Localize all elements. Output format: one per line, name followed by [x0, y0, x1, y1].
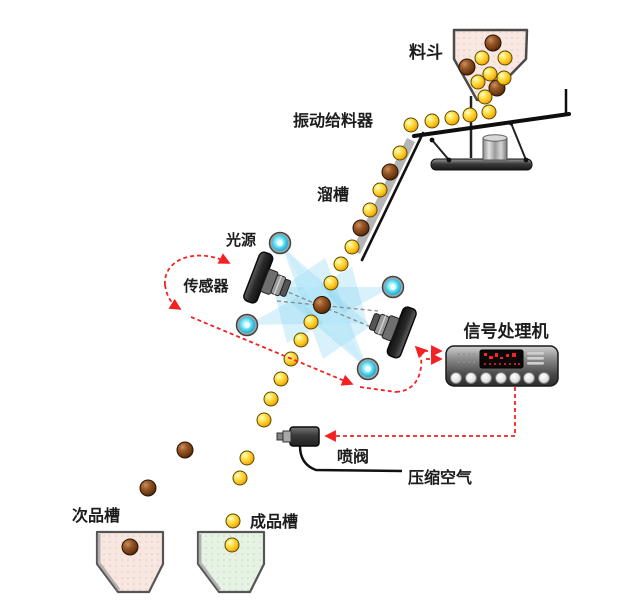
color-sorter-diagram: 料斗 振动给料器 — [0, 0, 640, 605]
reject-ball — [485, 35, 501, 51]
lamp-bottom — [358, 359, 379, 380]
reject-ball — [140, 480, 156, 496]
valve-nozzle — [277, 433, 283, 440]
accept-ball — [373, 183, 387, 197]
accept-ball — [497, 71, 511, 85]
sensor-label: 传感器 — [182, 277, 229, 295]
reject-ball — [122, 539, 138, 555]
reject-ball — [382, 164, 398, 180]
processor-button — [481, 373, 492, 384]
accept-ball — [226, 514, 240, 528]
processor-vents — [527, 352, 544, 365]
accept-ball — [471, 75, 485, 89]
processor-button — [496, 373, 507, 384]
pivot-dot — [524, 158, 529, 163]
accept-ball — [404, 118, 418, 132]
product-bin-label: 成品槽 — [250, 512, 298, 531]
feeder-base — [431, 159, 532, 170]
accept-ball — [498, 51, 512, 65]
valve-body — [290, 427, 319, 446]
reject-ball — [459, 59, 475, 75]
diagram-canvas: 料斗 振动给料器 — [0, 0, 640, 605]
accept-ball — [294, 333, 308, 347]
accept-ball — [240, 451, 254, 465]
accept-ball — [482, 105, 496, 119]
processor-button — [524, 373, 535, 384]
processor-button — [510, 373, 521, 384]
accept-ball — [478, 90, 492, 104]
processor-button — [451, 373, 462, 384]
feeder-leg-left — [432, 140, 449, 160]
accept-ball — [483, 67, 497, 81]
reject-bin — [97, 532, 163, 592]
accept-ball — [345, 240, 359, 254]
accept-ball — [334, 257, 348, 271]
processor-button — [466, 373, 477, 384]
light-source-label: 光源 — [225, 231, 256, 249]
inspected-reject-ball — [314, 297, 331, 314]
reject-bin-label: 次品槽 — [72, 506, 120, 525]
chute-edge — [362, 133, 423, 260]
sorted-balls — [140, 442, 254, 528]
accept-ball — [233, 471, 247, 485]
lamp-right — [383, 277, 404, 298]
valve-neck — [283, 431, 291, 442]
pivot-dot — [447, 158, 452, 163]
pivot-dot — [430, 138, 435, 143]
accept-ball — [324, 276, 338, 290]
signal-processor — [446, 346, 558, 386]
camera-lower-right — [363, 297, 418, 360]
detection-zone — [237, 233, 418, 428]
accept-ball — [475, 51, 489, 65]
chute — [345, 133, 423, 260]
accept-ball — [274, 372, 288, 386]
hopper — [454, 30, 527, 104]
lamp-left — [237, 315, 258, 336]
hopper-label: 料斗 — [409, 42, 443, 63]
accept-ball — [304, 315, 318, 329]
accept-ball — [257, 413, 271, 427]
feeder-motor-top — [483, 135, 507, 141]
product-bin — [198, 532, 264, 592]
signal-processor-label: 信号处理机 — [464, 321, 549, 342]
signal-diagonal-2 — [360, 387, 396, 392]
accept-ball — [225, 538, 239, 552]
signal-arc-left — [165, 285, 180, 309]
spray-valve-label: 喷阀 — [337, 447, 369, 466]
vibrating-feeder-label: 振动给料器 — [293, 111, 374, 130]
compressed-air-label: 压缩空气 — [408, 468, 472, 487]
accept-ball — [363, 203, 377, 217]
lamp-top — [270, 233, 291, 254]
reject-ball — [353, 220, 369, 236]
accept-ball — [445, 111, 459, 125]
accept-ball — [393, 146, 407, 160]
accept-ball — [463, 108, 477, 122]
chute-label: 溜槽 — [317, 185, 349, 204]
accept-ball — [425, 114, 439, 128]
feeder-leg-right — [511, 123, 526, 160]
accept-ball — [264, 392, 278, 406]
processor-button — [539, 373, 550, 384]
reject-ball — [177, 442, 193, 458]
